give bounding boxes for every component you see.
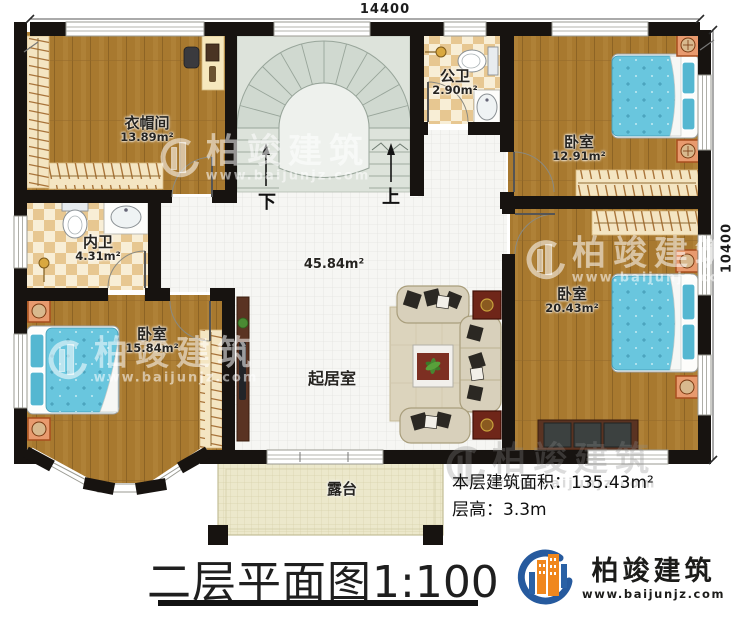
room-label-cloakroom: 衣帽间 13.89m²: [120, 115, 173, 144]
title-underline: [158, 600, 478, 606]
tv-console: [538, 420, 638, 450]
toilet-tank: [488, 47, 498, 75]
staircase: [237, 36, 411, 192]
window: [274, 22, 370, 36]
window: [66, 22, 204, 36]
room-name: 公卫: [432, 68, 477, 84]
room-area: 13.89m²: [120, 131, 173, 144]
dimension-top: 14400: [360, 2, 410, 17]
nightstand: [28, 418, 50, 440]
tv: [239, 342, 246, 400]
room-label-private-bathroom: 内卫 4.31m²: [75, 234, 120, 263]
shower-head: [436, 47, 446, 57]
floor-plan-canvas: 柏竣建筑 www.baijunjz.com 柏竣建筑 www.baijunjz.…: [0, 0, 750, 621]
floor-area-line: 本层建筑面积：135.43m²: [452, 470, 654, 497]
room-label-terrace: 露台: [327, 481, 357, 497]
room-name: 内卫: [75, 234, 120, 250]
room-name: 卧室: [545, 286, 598, 302]
living-room-floor: [155, 197, 507, 292]
window: [14, 216, 27, 268]
company-logo: 柏竣建筑 www.baijunjz.com: [512, 548, 725, 610]
floor-height-value: 3.3m: [503, 500, 547, 520]
shower-head: [39, 258, 49, 268]
room-name: 衣帽间: [120, 115, 173, 131]
hallway-floor: [418, 130, 506, 205]
window: [698, 235, 711, 295]
room-label-bedroom-top-right: 卧室 12.91m²: [552, 134, 605, 163]
wall-stairs-right: [410, 36, 424, 196]
sink: [477, 94, 497, 120]
room-label-living-room: 起居室: [308, 370, 356, 387]
terrace-sliding-door: [267, 450, 383, 464]
nightstand: [676, 376, 698, 398]
logo-url-text: www.baijunjz.com: [582, 587, 725, 601]
room-name: 卧室: [552, 134, 605, 150]
terrace-column: [423, 525, 443, 545]
living-room-area-label: 45.84m²: [304, 257, 364, 272]
room-area: 15.84m²: [125, 342, 178, 355]
floor-area-value: 135.43m²: [571, 473, 654, 493]
window: [698, 75, 711, 150]
window: [698, 355, 711, 415]
logo-brand-text: 柏竣建筑: [592, 557, 716, 587]
floor-plan-drawing: [0, 0, 750, 621]
nightstand: [677, 34, 699, 56]
plant: [238, 318, 248, 328]
dimension-right: 10400: [720, 223, 735, 273]
coffee-table: [413, 345, 453, 387]
nightstand: [676, 250, 698, 272]
end-table: [473, 411, 501, 439]
floor-height-label: 层高：: [452, 500, 503, 520]
window: [444, 22, 486, 36]
window: [588, 450, 668, 464]
window: [14, 334, 27, 408]
desk-chair: [184, 47, 199, 68]
window: [552, 22, 648, 36]
room-area: 4.31m²: [75, 250, 120, 263]
room-name: 卧室: [125, 326, 178, 342]
room-name: 露台: [327, 481, 357, 497]
terrace-floor: [218, 463, 443, 535]
room-label-public-bathroom: 公卫 2.90m²: [432, 68, 477, 97]
stats-block: 本层建筑面积：135.43m² 层高：3.3m: [452, 470, 654, 524]
terrace-column: [208, 525, 228, 545]
floor-height-line: 层高：3.3m: [452, 497, 654, 524]
company-logo-icon: [512, 548, 574, 610]
floor-area-label: 本层建筑面积：: [452, 473, 571, 493]
room-label-bedroom-bottom-left: 卧室 15.84m²: [125, 326, 178, 355]
stair-down-label: 下: [258, 188, 276, 214]
room-label-bedroom-right: 卧室 20.43m²: [545, 286, 598, 315]
stair-up-label: 上: [382, 183, 400, 209]
room-area: 12.91m²: [552, 150, 605, 163]
room-area: 2.90m²: [432, 84, 477, 97]
nightstand: [28, 300, 50, 322]
end-table: [473, 291, 501, 319]
nightstand: [677, 140, 699, 162]
room-name: 起居室: [308, 370, 356, 387]
room-area: 20.43m²: [545, 302, 598, 315]
stair-well: [279, 83, 369, 177]
wall-cloakroom-right: [225, 36, 237, 203]
